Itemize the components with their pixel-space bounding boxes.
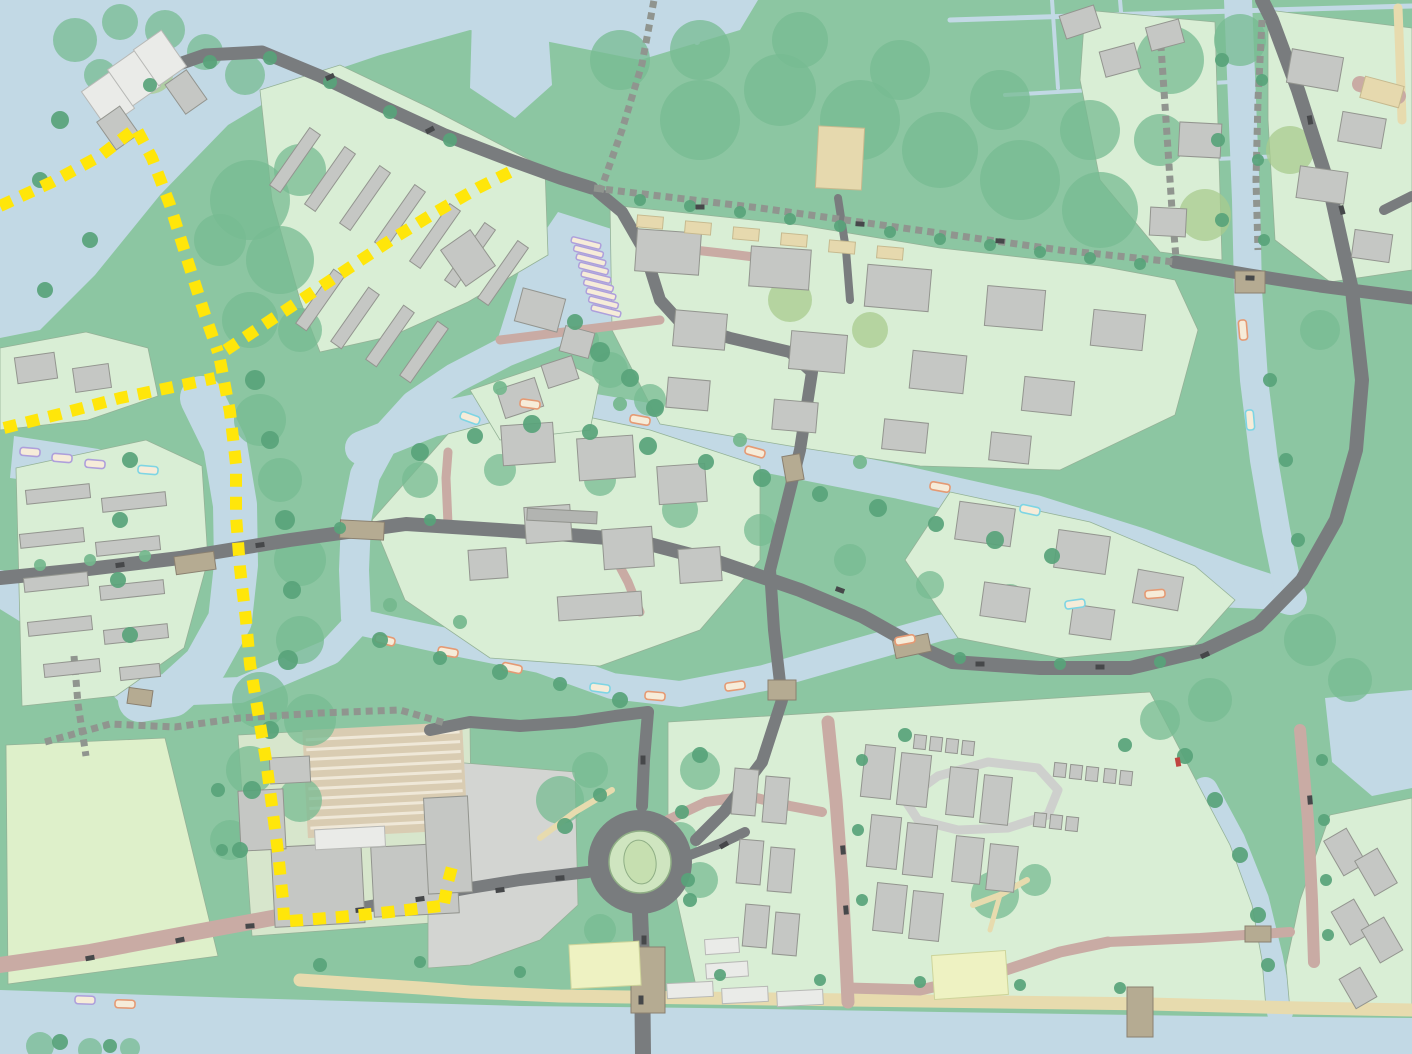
roundabout (588, 810, 692, 914)
map-viewport (0, 0, 1412, 1054)
site-plan-map-canvas (0, 0, 1412, 1054)
